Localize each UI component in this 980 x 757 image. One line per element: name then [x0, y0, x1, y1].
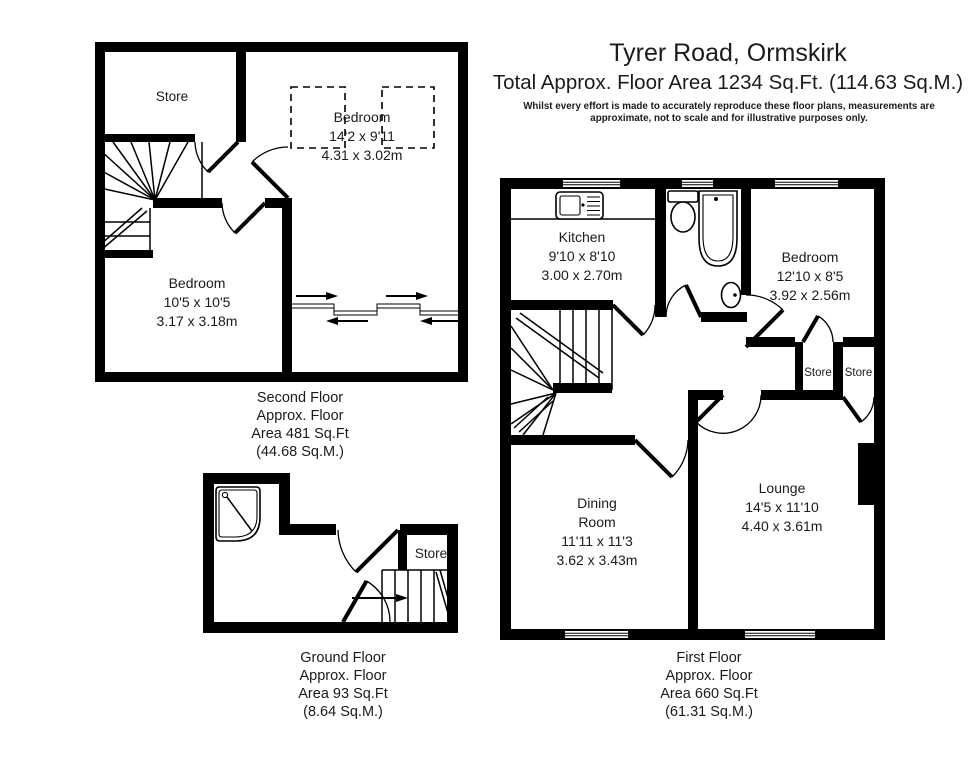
second-floor-caption-3: Area 481 Sq.Ft — [251, 426, 349, 442]
window-bathroom — [682, 180, 713, 187]
ground-floor-caption-3: Area 93 Sq.Ft — [298, 686, 387, 702]
second-floor-caption-1: Second Floor — [257, 390, 343, 406]
toilet-icon — [668, 191, 698, 232]
chimney-breast — [858, 443, 874, 505]
front-bedroom-name: Bedroom — [169, 275, 226, 291]
dining-metric: 3.62 x 3.43m — [557, 552, 638, 568]
bathroom-bottom-wall — [701, 312, 747, 322]
kitchen-bottom-wall — [511, 300, 613, 310]
front-bedroom-metric: 3.17 x 3.18m — [157, 313, 238, 329]
stores-divider-wall — [833, 342, 843, 397]
page-subtitle: Total Approx. Floor Area 1234 Sq.Ft. (11… — [493, 71, 963, 94]
first-floor-store-left-label: Store — [804, 367, 832, 379]
second-floor-caption: Second Floor Approx. Floor Area 481 Sq.F… — [251, 390, 349, 460]
second-floor-plan: Store Bedroom 14'2 x 9'11 4.31 x 3.02m B… — [95, 42, 463, 460]
shower-icon — [216, 487, 260, 541]
dining-lounge-wall — [688, 390, 698, 629]
sink-icon — [556, 192, 603, 219]
bathroom-bedroom-wall — [741, 189, 751, 295]
kitchen-name: Kitchen — [559, 229, 606, 245]
first-bedroom-label: Bedroom 12'10 x 8'5 3.92 x 2.56m — [770, 249, 851, 303]
store-right-top-wall — [843, 337, 874, 347]
ground-floor-plan: Store Ground Floor Approx. Floor Area 93… — [209, 479, 453, 721]
store-right-wall — [236, 42, 246, 142]
lounge-imperial: 14'5 x 11'10 — [745, 499, 819, 515]
lounge-metric: 4.40 x 3.61m — [742, 518, 823, 534]
first-floor-caption-2: Approx. Floor — [665, 668, 752, 684]
front-bedroom-right-wall — [282, 198, 292, 382]
rear-bedroom-metric: 4.31 x 3.02m — [322, 147, 403, 163]
ground-floor-caption-4: (8.64 Sq.M.) — [303, 704, 383, 720]
disclaimer-line-2: approximate, not to scale and for illust… — [590, 113, 868, 124]
first-floor-plan: Kitchen 9'10 x 8'10 3.00 x 2.70m Bedroom… — [506, 180, 880, 720]
rear-bedroom-label: Bedroom 14'2 x 9'11 4.31 x 3.02m — [322, 109, 403, 163]
lounge-name: Lounge — [759, 480, 806, 496]
floorplan-page: Tyrer Road, Ormskirk Total Approx. Floor… — [0, 0, 980, 757]
landing-wall — [153, 198, 222, 208]
first-bedroom-name: Bedroom — [782, 249, 839, 265]
dining-name-2: Room — [578, 514, 615, 530]
kitchen-imperial: 9'10 x 8'10 — [549, 248, 616, 264]
first-floor-caption-1: First Floor — [676, 650, 741, 666]
window-lounge — [745, 631, 815, 638]
window-dining — [565, 631, 628, 638]
bathtub-icon — [699, 191, 737, 266]
first-floor-caption-4: (61.31 Sq.M.) — [665, 704, 753, 720]
second-floor-outer-wall — [100, 47, 463, 377]
second-floor-caption-4: (44.68 Sq.M.) — [256, 444, 344, 460]
floorplan-canvas: Tyrer Road, Ormskirk Total Approx. Floor… — [0, 0, 980, 757]
stair-newel-wall — [553, 383, 612, 393]
page-title: Tyrer Road, Ormskirk — [609, 39, 847, 67]
first-floor-caption: First Floor Approx. Floor Area 660 Sq.Ft… — [660, 650, 758, 720]
ground-floor-caption-2: Approx. Floor — [299, 668, 386, 684]
store-left-wall — [795, 342, 803, 397]
first-floor-caption-3: Area 660 Sq.Ft — [660, 686, 758, 702]
ground-floor-caption-1: Ground Floor — [300, 650, 386, 666]
rear-bedroom-name: Bedroom — [334, 109, 391, 125]
store-bottom-wall — [95, 134, 195, 142]
front-bedroom-imperial: 10'5 x 10'5 — [164, 294, 231, 310]
ground-floor-caption: Ground Floor Approx. Floor Area 93 Sq.Ft… — [298, 650, 387, 720]
dining-imperial: 11'11 x 11'3 — [561, 533, 633, 549]
kitchen-metric: 3.00 x 2.70m — [542, 267, 623, 283]
window-bedroom — [775, 180, 838, 187]
stair-bottom-wall — [95, 250, 153, 258]
front-bedroom-label: Bedroom 10'5 x 10'5 3.17 x 3.18m — [157, 275, 238, 329]
entrance-opening — [336, 523, 400, 536]
window-kitchen — [563, 180, 620, 187]
disclaimer-line-1: Whilst every effort is made to accuratel… — [523, 101, 935, 112]
basin-icon — [722, 283, 741, 308]
header: Tyrer Road, Ormskirk Total Approx. Floor… — [493, 39, 963, 124]
dining-top-wall — [511, 435, 635, 445]
first-bedroom-metric: 3.92 x 2.56m — [770, 287, 851, 303]
lounge-top-wall-right — [761, 390, 843, 400]
ground-store-wall — [398, 530, 407, 570]
rear-bedroom-imperial: 14'2 x 9'11 — [329, 128, 395, 144]
second-floor-store-label: Store — [156, 89, 188, 104]
dining-name-1: Dining — [577, 495, 617, 511]
ground-store-label: Store — [415, 546, 447, 561]
second-floor-caption-2: Approx. Floor — [256, 408, 343, 424]
kitchen-bathroom-wall — [655, 189, 666, 317]
first-floor-store-right-label: Store — [845, 367, 873, 379]
first-bedroom-imperial: 12'10 x 8'5 — [777, 268, 844, 284]
